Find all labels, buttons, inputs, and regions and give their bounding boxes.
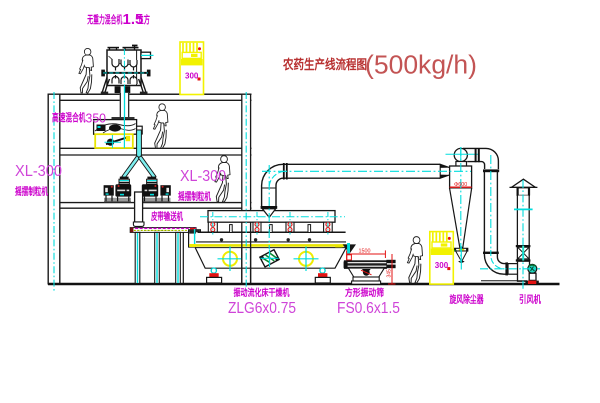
svg-text:无重力混合机: 无重力混合机 bbox=[87, 13, 123, 26]
svg-text:XL-300: XL-300 bbox=[180, 168, 226, 185]
svg-text:XL-300: XL-300 bbox=[15, 163, 62, 180]
svg-text:立方: 立方 bbox=[138, 13, 151, 26]
svg-text:ZLG6x0.75: ZLG6x0.75 bbox=[228, 300, 296, 317]
svg-text:旋风除尘器: 旋风除尘器 bbox=[449, 293, 484, 306]
svg-text:摇摆制粒机: 摇摆制粒机 bbox=[178, 190, 211, 203]
svg-text:摇摆制粒机: 摇摆制粒机 bbox=[15, 185, 48, 198]
svg-text:引风机: 引风机 bbox=[519, 293, 541, 306]
svg-text:方形振动筛: 方形振动筛 bbox=[345, 287, 384, 299]
svg-text:农药生产线流程图: 农药生产线流程图 bbox=[282, 56, 367, 72]
svg-text:振动流化床干燥机: 振动流化床干燥机 bbox=[234, 287, 290, 299]
svg-text:345: 345 bbox=[386, 269, 392, 278]
svg-text:350: 350 bbox=[86, 111, 107, 126]
svg-text:皮带输送机: 皮带输送机 bbox=[150, 210, 183, 223]
svg-text:(500kg/h): (500kg/h) bbox=[365, 52, 477, 80]
svg-text:Φ600: Φ600 bbox=[454, 182, 467, 188]
svg-text:高速混合机: 高速混合机 bbox=[52, 111, 86, 124]
svg-text:1500: 1500 bbox=[359, 249, 371, 255]
svg-text:FS0.6x1.5: FS0.6x1.5 bbox=[337, 300, 400, 317]
